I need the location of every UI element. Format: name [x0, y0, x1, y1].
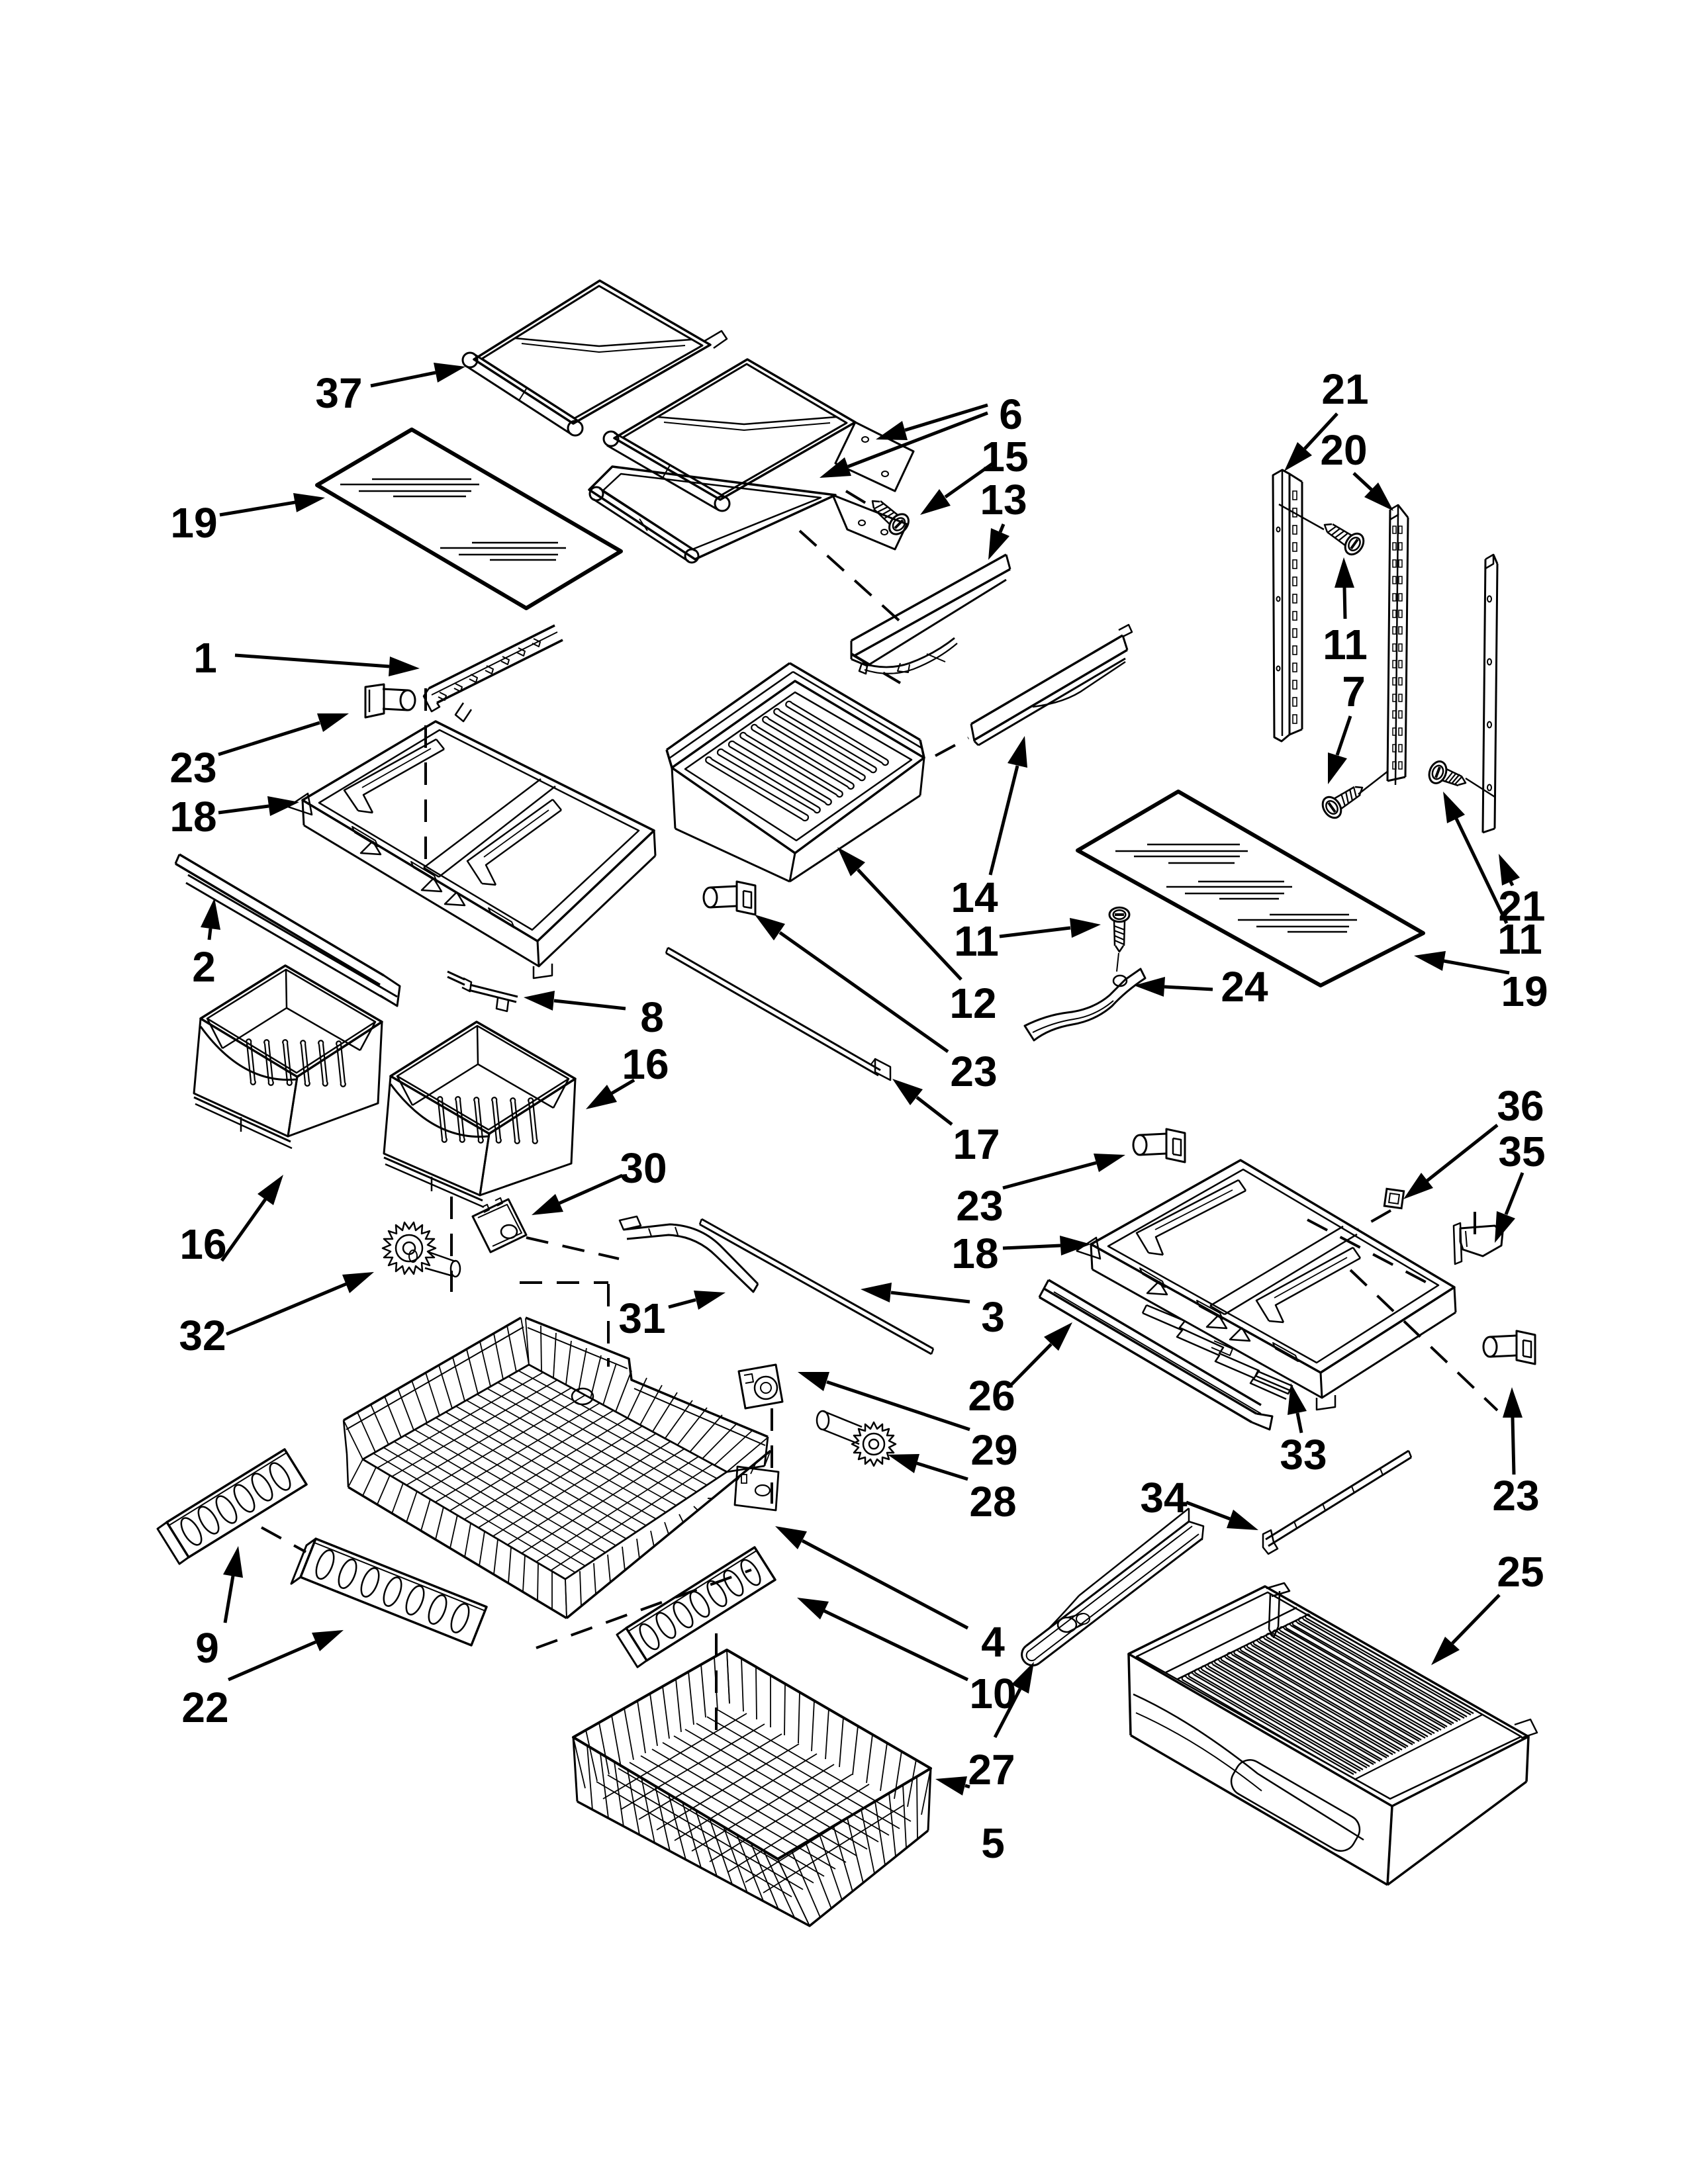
- svg-text:1: 1: [193, 634, 217, 682]
- svg-text:14: 14: [951, 874, 998, 921]
- svg-text:34: 34: [1140, 1474, 1188, 1522]
- svg-text:30: 30: [620, 1144, 667, 1192]
- svg-text:2: 2: [192, 943, 216, 991]
- svg-text:21: 21: [1321, 365, 1368, 413]
- svg-text:23: 23: [1492, 1472, 1539, 1520]
- svg-text:5: 5: [981, 1819, 1005, 1867]
- svg-text:24: 24: [1221, 963, 1268, 1011]
- svg-text:25: 25: [1497, 1548, 1544, 1596]
- svg-text:23: 23: [169, 744, 216, 792]
- svg-text:20: 20: [1320, 426, 1367, 474]
- svg-text:19: 19: [170, 499, 217, 547]
- svg-text:36: 36: [1497, 1082, 1544, 1130]
- svg-text:22: 22: [181, 1684, 228, 1731]
- svg-text:29: 29: [970, 1426, 1017, 1474]
- svg-text:9: 9: [195, 1624, 219, 1672]
- svg-text:4: 4: [981, 1618, 1005, 1666]
- svg-text:18: 18: [169, 793, 216, 841]
- svg-text:37: 37: [315, 369, 362, 417]
- svg-text:19: 19: [1501, 968, 1548, 1015]
- svg-text:17: 17: [953, 1120, 1000, 1168]
- svg-text:15: 15: [981, 433, 1028, 480]
- svg-text:32: 32: [179, 1312, 226, 1359]
- svg-text:35: 35: [1498, 1128, 1545, 1175]
- svg-text:16: 16: [622, 1040, 669, 1088]
- svg-text:31: 31: [618, 1295, 665, 1342]
- svg-text:11: 11: [1323, 621, 1368, 668]
- svg-text:16: 16: [179, 1220, 226, 1268]
- svg-text:7: 7: [1342, 668, 1366, 715]
- svg-text:13: 13: [980, 476, 1027, 523]
- svg-text:27: 27: [968, 1746, 1015, 1794]
- svg-text:11: 11: [954, 917, 999, 965]
- svg-text:3: 3: [981, 1293, 1005, 1341]
- svg-text:18: 18: [951, 1230, 998, 1277]
- svg-text:23: 23: [956, 1182, 1003, 1230]
- svg-text:26: 26: [968, 1372, 1015, 1420]
- svg-text:8: 8: [640, 993, 664, 1041]
- svg-text:11: 11: [1497, 915, 1542, 963]
- svg-text:6: 6: [999, 390, 1023, 438]
- svg-text:33: 33: [1280, 1431, 1327, 1479]
- svg-text:28: 28: [969, 1478, 1016, 1525]
- svg-text:23: 23: [950, 1048, 997, 1095]
- svg-text:12: 12: [949, 979, 996, 1027]
